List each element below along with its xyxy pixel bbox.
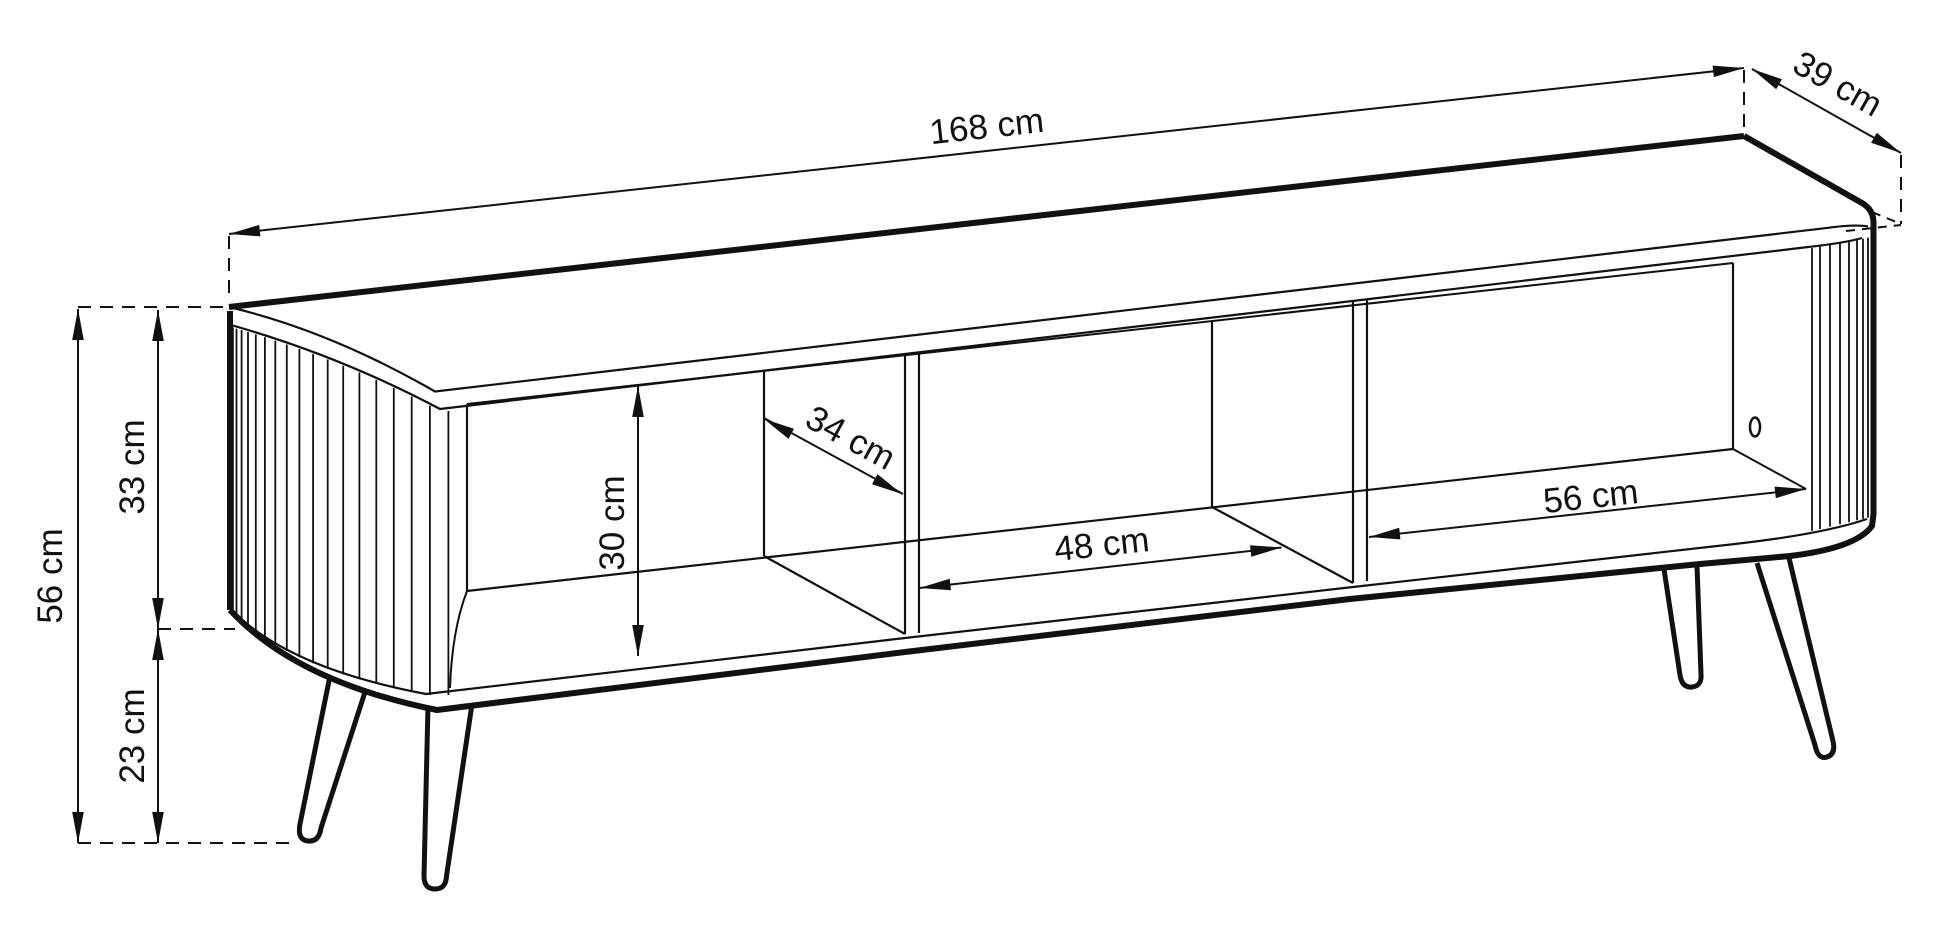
svg-text:30 cm: 30 cm xyxy=(593,475,632,570)
svg-text:56 cm: 56 cm xyxy=(31,528,70,623)
svg-text:33 cm: 33 cm xyxy=(113,419,152,514)
svg-text:23 cm: 23 cm xyxy=(113,688,152,783)
